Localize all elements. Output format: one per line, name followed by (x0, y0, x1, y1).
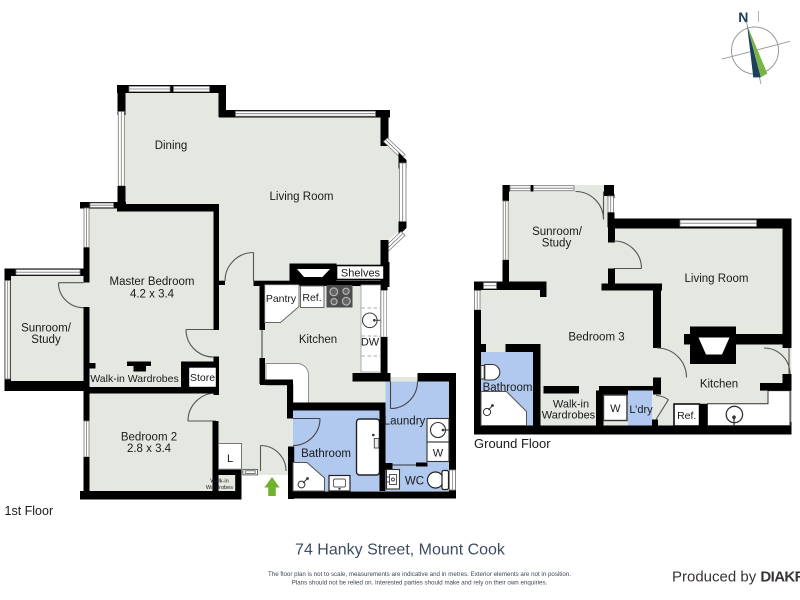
svg-text:Wardrobes: Wardrobes (206, 485, 233, 491)
svg-text:Walk-in Wardrobes: Walk-in Wardrobes (90, 373, 179, 385)
svg-text:Sunroom/: Sunroom/ (21, 323, 72, 335)
svg-text:Walk-in: Walk-in (210, 479, 228, 485)
svg-text:Dining: Dining (155, 140, 188, 152)
svg-text:1st Floor: 1st Floor (5, 504, 54, 518)
svg-text:Pantry: Pantry (266, 293, 297, 305)
svg-text:Laundry: Laundry (384, 416, 426, 428)
svg-text:Study: Study (542, 238, 572, 250)
svg-text:Ground Floor: Ground Floor (474, 436, 551, 451)
svg-text:74 Hanky Street, Mount Cook: 74 Hanky Street, Mount Cook (295, 542, 506, 559)
svg-text:Ref.: Ref. (677, 410, 696, 422)
svg-text:Produced by DIAKRIT: Produced by DIAKRIT (672, 569, 800, 586)
svg-text:Wardrobes: Wardrobes (542, 410, 596, 422)
svg-text:2.8 x 3.4: 2.8 x 3.4 (127, 443, 172, 455)
svg-text:Living Room: Living Room (270, 191, 334, 203)
svg-text:Study: Study (31, 334, 61, 346)
svg-text:W: W (433, 448, 444, 460)
svg-text:W: W (610, 403, 621, 415)
svg-text:Bedroom 3: Bedroom 3 (568, 332, 624, 344)
svg-text:Sunroom/: Sunroom/ (532, 226, 583, 238)
svg-text:Living Room: Living Room (685, 273, 749, 285)
svg-text:Kitchen: Kitchen (299, 334, 337, 346)
svg-text:L: L (227, 453, 233, 465)
svg-text:DW: DW (361, 337, 380, 349)
svg-text:Bathroom: Bathroom (483, 382, 533, 394)
svg-text:The floor plan is not to scale: The floor plan is not to scale, measurem… (268, 571, 571, 578)
svg-text:Bedroom 2: Bedroom 2 (121, 432, 177, 444)
svg-text:Master Bedroom: Master Bedroom (109, 276, 194, 288)
svg-text:Plans should not be relied on.: Plans should not be relied on. Intereste… (292, 579, 548, 586)
svg-text:WC: WC (405, 476, 424, 488)
svg-text:Bathroom: Bathroom (301, 448, 351, 460)
svg-text:Store: Store (190, 372, 215, 384)
svg-text:Kitchen: Kitchen (700, 379, 738, 391)
svg-text:L’dry: L’dry (629, 404, 653, 416)
svg-text:Shelves: Shelves (341, 268, 381, 280)
svg-text:N: N (738, 9, 748, 25)
svg-text:Ref.: Ref. (302, 292, 321, 304)
svg-text:4.2 x 3.4: 4.2 x 3.4 (130, 289, 175, 301)
